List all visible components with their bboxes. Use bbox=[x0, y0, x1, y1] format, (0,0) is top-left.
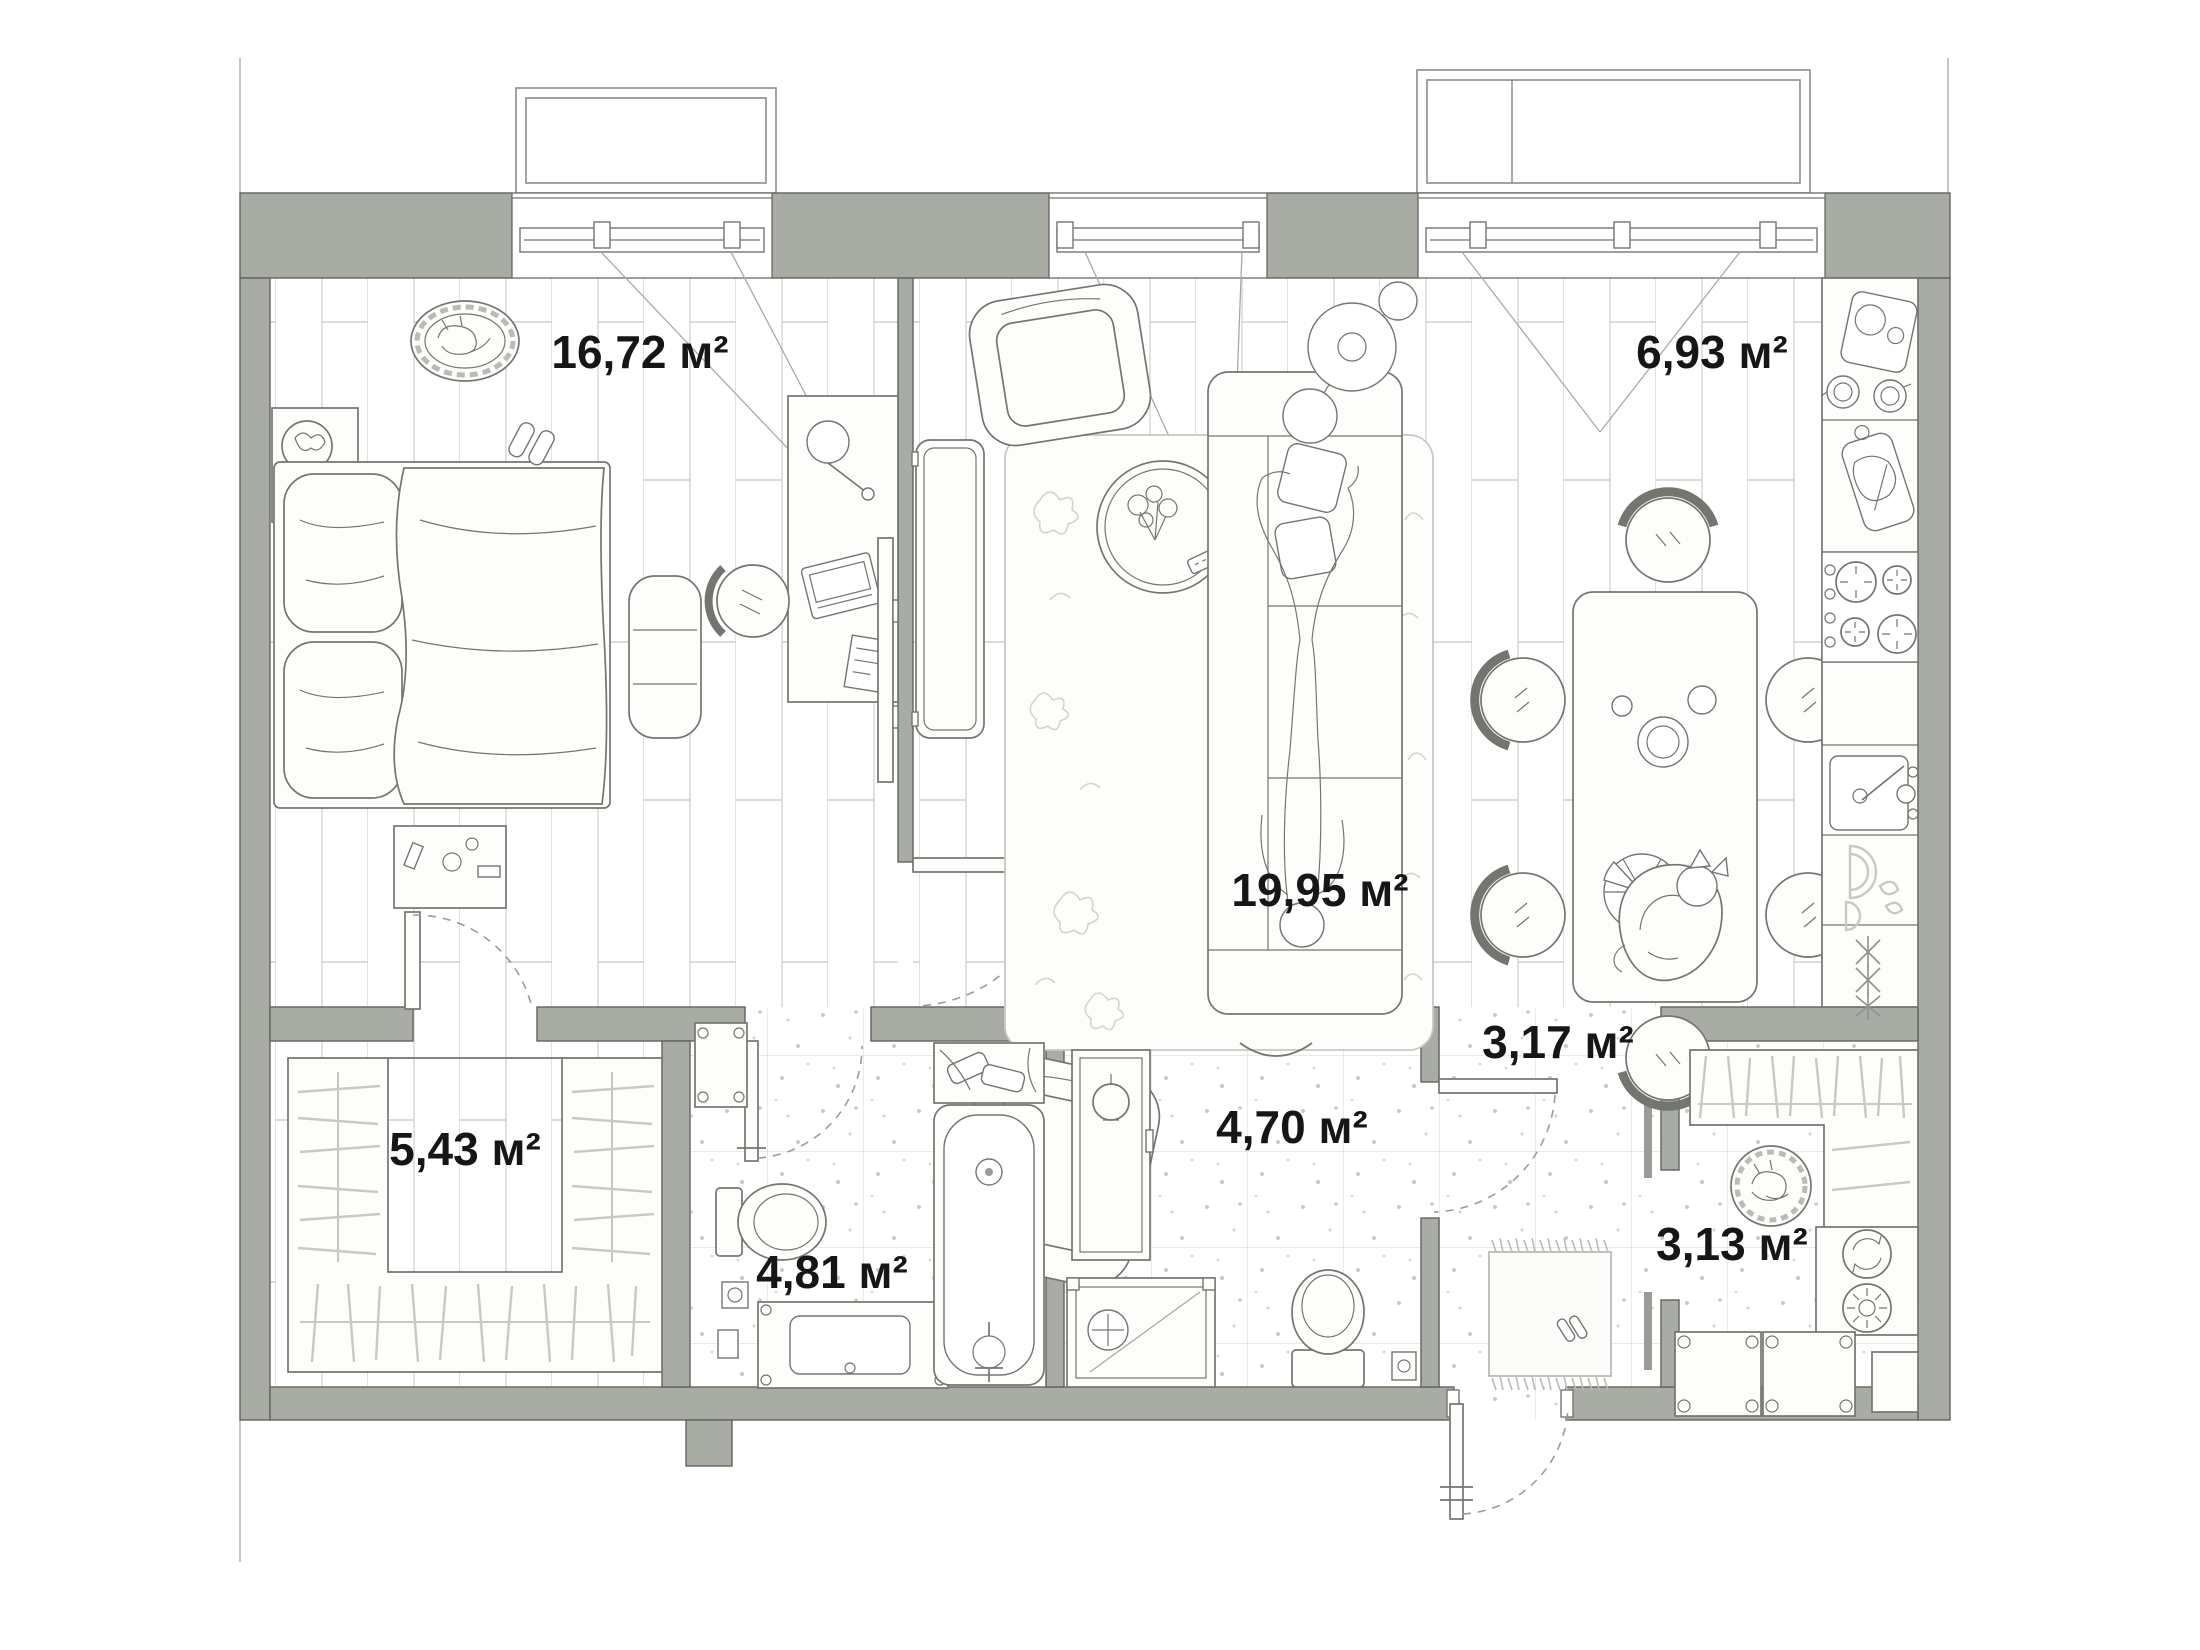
toilet-paper-holder bbox=[722, 1282, 748, 1308]
cat-basket bbox=[411, 301, 519, 381]
bathtub bbox=[934, 1105, 1044, 1385]
hallway bbox=[1489, 1238, 1611, 1390]
exterior-column bbox=[686, 1420, 732, 1466]
coffee-machine bbox=[1839, 290, 1919, 374]
vanity-column bbox=[1072, 1050, 1153, 1260]
shower bbox=[1067, 1278, 1215, 1387]
hall-rug bbox=[1489, 1238, 1611, 1390]
bench bbox=[629, 576, 701, 738]
label-laundry: 3,13 м² bbox=[1656, 1218, 1808, 1270]
media-console bbox=[912, 440, 984, 738]
label-wardrobe: 5,43 м² bbox=[389, 1123, 541, 1175]
armchair-top bbox=[965, 280, 1156, 451]
pet-basket bbox=[1731, 1146, 1811, 1226]
kitchen-sink bbox=[1830, 756, 1918, 830]
label-bathroom: 4,81 м² bbox=[756, 1246, 908, 1298]
floor-plan-page: 16,72 м² 19,95 м² 6,93 м² 5,43 м² 4,81 м… bbox=[0, 0, 2200, 1650]
label-hallway: 3,17 м² bbox=[1482, 1016, 1634, 1068]
vanity-sink bbox=[758, 1302, 948, 1388]
label-bedroom: 16,72 м² bbox=[551, 326, 728, 378]
sofa bbox=[1208, 372, 1402, 1014]
label-living: 19,95 м² bbox=[1231, 864, 1408, 916]
label-kitchen: 6,93 м² bbox=[1636, 326, 1788, 378]
entrance-threshold bbox=[1454, 1387, 1566, 1420]
washer-dryer-column bbox=[1816, 1227, 1918, 1335]
kitchen-counter bbox=[1821, 278, 1919, 1020]
stove bbox=[1822, 552, 1918, 662]
bathroom-doorway-floor bbox=[745, 1007, 871, 1041]
bed bbox=[274, 462, 610, 808]
balcony-box-bedroom bbox=[516, 88, 776, 193]
wall-cabinet bbox=[695, 1023, 747, 1107]
bin bbox=[718, 1330, 738, 1358]
desk-chair bbox=[709, 565, 789, 637]
balcony-box-kitchen bbox=[1417, 70, 1810, 193]
floor-plan-svg: 16,72 м² 19,95 м² 6,93 м² 5,43 м² 4,81 м… bbox=[0, 0, 2200, 1650]
dresser bbox=[394, 826, 506, 908]
towel-shelf bbox=[934, 1043, 1044, 1103]
label-shower: 4,70 м² bbox=[1216, 1101, 1368, 1153]
